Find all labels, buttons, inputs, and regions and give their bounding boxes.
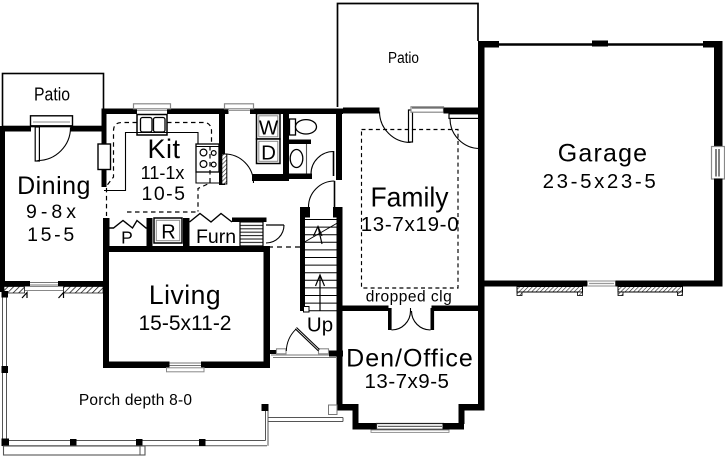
svg-text:Up: Up [307,314,333,337]
svg-text:R: R [161,222,175,244]
svg-text:23-5x23-5: 23-5x23-5 [543,170,659,193]
svg-text:W: W [259,117,279,140]
svg-text:D: D [261,142,276,165]
svg-text:Den/Office: Den/Office [346,345,474,373]
svg-text:15-5x11-2: 15-5x11-2 [138,312,231,335]
svg-text:13-7x19-0: 13-7x19-0 [361,213,460,236]
svg-text:10-5: 10-5 [141,183,186,205]
svg-text:15-5: 15-5 [27,224,77,246]
svg-text:Dining: Dining [17,172,91,200]
svg-text:Patio: Patio [34,84,70,105]
svg-text:9-8x: 9-8x [26,201,80,223]
svg-text:Living: Living [149,280,221,310]
svg-text:Patio: Patio [388,50,419,67]
svg-text:dropped clg: dropped clg [366,289,453,306]
svg-text:Family: Family [371,182,449,213]
svg-text:Kit: Kit [147,134,180,164]
svg-text:13-7x9-5: 13-7x9-5 [365,370,450,393]
svg-text:P: P [121,228,133,248]
svg-text:Porch depth 8-0: Porch depth 8-0 [79,392,192,409]
svg-text:Furn: Furn [196,226,236,248]
svg-text:Garage: Garage [558,140,649,168]
svg-text:11-1x: 11-1x [141,163,185,183]
